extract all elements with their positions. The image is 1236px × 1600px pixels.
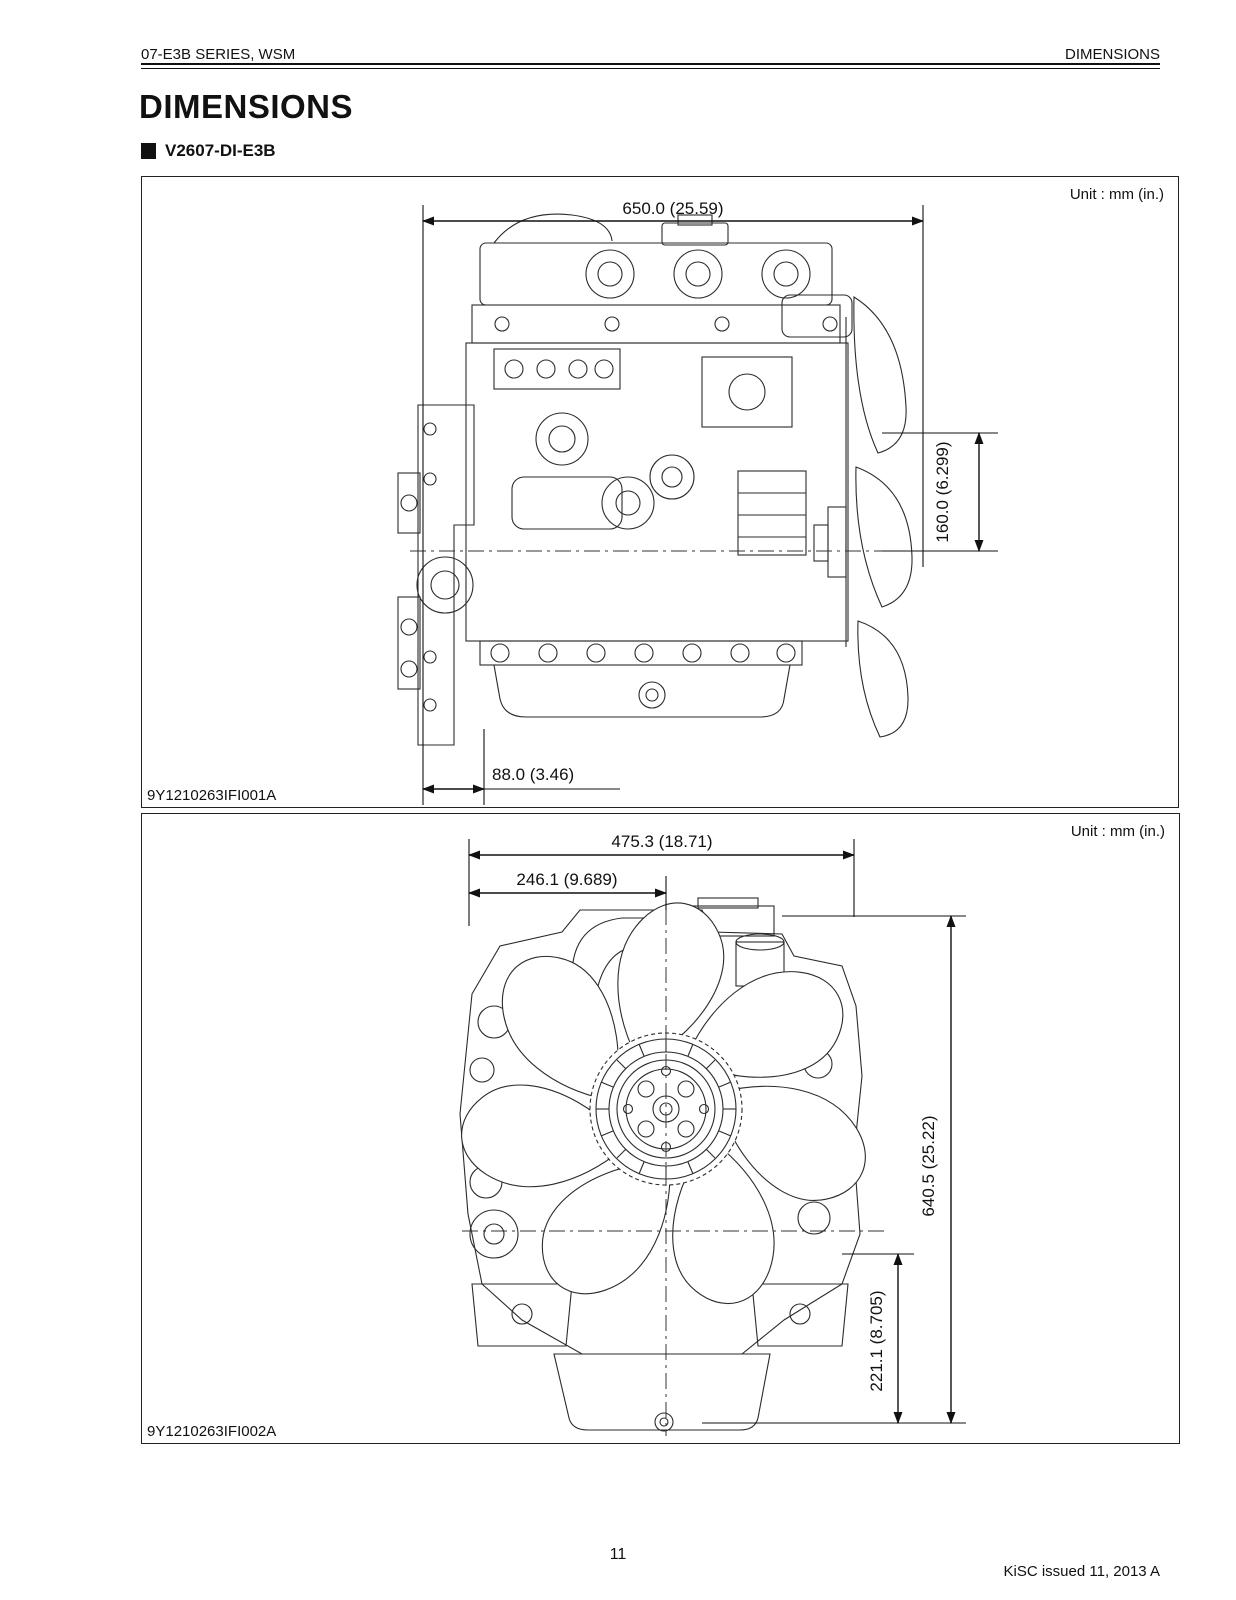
- unit-label-fig1: Unit : mm (in.): [1070, 186, 1164, 203]
- dim-221-label: 221.1 (8.705): [867, 1290, 886, 1391]
- header-chapter: DIMENSIONS: [1065, 46, 1160, 63]
- dimension-160: 160.0 (6.299): [882, 433, 998, 551]
- dim-650-label: 650.0 (25.59): [622, 199, 723, 218]
- engine-model-label: V2607-DI-E3B: [165, 141, 276, 161]
- front-view-drawing: 475.3 (18.71) 246.1 (9.689) 640.5 (25.22…: [142, 814, 1179, 1443]
- side-view-drawing: 650.0 (25.59) 160.0 (6.299) 88.0 (3.46): [142, 177, 1178, 807]
- dim-160-label: 160.0 (6.299): [933, 441, 952, 542]
- dim-88-label: 88.0 (3.46): [492, 765, 574, 784]
- dimension-221: 221.1 (8.705): [842, 1254, 914, 1423]
- footer-issue-note: KiSC issued 11, 2013 A: [1004, 1563, 1161, 1580]
- header-rule: [141, 63, 1160, 69]
- figure-front-view: 475.3 (18.71) 246.1 (9.689) 640.5 (25.22…: [141, 813, 1180, 1444]
- unit-label-fig2: Unit : mm (in.): [1071, 823, 1165, 840]
- engine-side-sketch: [398, 214, 912, 745]
- section-square-bullet: [141, 143, 156, 159]
- dim-246-label: 246.1 (9.689): [516, 870, 617, 889]
- figure-side-view: 650.0 (25.59) 160.0 (6.299) 88.0 (3.46) …: [141, 176, 1179, 808]
- figure2-code: 9Y1210263IFI002A: [147, 1423, 276, 1440]
- section-heading: V2607-DI-E3B: [141, 141, 276, 161]
- figure1-code: 9Y1210263IFI001A: [147, 787, 276, 804]
- dim-640-label: 640.5 (25.22): [919, 1115, 938, 1216]
- page-title: DIMENSIONS: [139, 88, 353, 126]
- header-series: 07-E3B SERIES, WSM: [141, 46, 295, 63]
- dimension-88: 88.0 (3.46): [423, 729, 620, 805]
- dim-475-label: 475.3 (18.71): [611, 832, 712, 851]
- dimension-246: 246.1 (9.689): [469, 870, 666, 910]
- manual-page: 07-E3B SERIES, WSM DIMENSIONS DIMENSIONS…: [0, 0, 1236, 1600]
- page-number: 11: [0, 1546, 1236, 1564]
